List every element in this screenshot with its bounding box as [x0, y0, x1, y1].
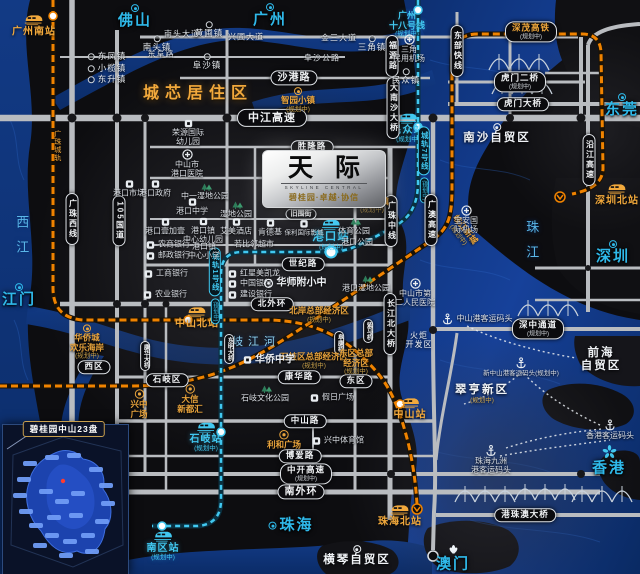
- station-nanqu-label: 南区站: [147, 543, 180, 554]
- road-fusha-hwy-text: 阜沙公路: [304, 55, 340, 64]
- rail-guangzhu-label: 广珠城轨: [53, 130, 61, 162]
- road-nanwaihuan: 南外环: [278, 484, 325, 499]
- poi-yijiayi-label: 港口壹加壹: [145, 228, 185, 237]
- town-fusha: 阜沙镇: [193, 53, 222, 71]
- train-icon: [196, 420, 216, 433]
- city-macau: 澳门: [436, 545, 470, 574]
- poi-xingzhong-plaza-line-1: 广场: [130, 410, 147, 420]
- zone-cuiheng: 翠亨新区(规划中): [455, 384, 509, 404]
- bank-icon: [144, 270, 153, 279]
- furniture-mall-icon: [228, 270, 237, 279]
- station-guangzhounan-label: 广州南站: [12, 26, 56, 37]
- town-dongfeng-text: 东凤镇: [98, 52, 127, 62]
- poi-shiqi-cbd-suffix: (规划中): [302, 362, 326, 369]
- poi-dongqu-cbd-line-1: 经济区: [343, 358, 369, 368]
- project-name: 天际: [266, 156, 382, 181]
- bridge-humen2-suffix: (规划中): [509, 84, 531, 91]
- river-zhujiang-label: 珠江: [524, 220, 539, 270]
- poi-gangkou-middle-text: 港口中学: [176, 208, 208, 217]
- poi-lihe-plaza-label: 利和广场: [267, 441, 301, 451]
- poi-wetland-park: 湿地公园: [220, 199, 252, 220]
- plaza-icon: [185, 384, 195, 394]
- road-dongqu-label: 东区: [346, 376, 365, 386]
- road-fusha-hwy-label: 阜沙公路: [304, 55, 340, 64]
- poi-huaqiao-middle: 华侨中学: [243, 354, 295, 365]
- plaza-icon: [134, 389, 144, 399]
- poi-ruobilin-label: 若比邻超市: [234, 241, 274, 250]
- poi-poly-cinema-label: 保利国际影城: [285, 229, 324, 236]
- station-gangkou-suffix: (规划中): [319, 244, 343, 251]
- poi-second-hospital-text: 中山市第二人民医院: [395, 290, 435, 308]
- poi-sanjiao-airport-text: 三角民用机场: [393, 46, 425, 64]
- logo-divider: [281, 183, 367, 184]
- road-jiuwei: 旧围街: [286, 209, 317, 220]
- poi-gangkou-gov-text: 港口政府: [139, 190, 171, 199]
- project-logo-card: 天际 SKYLINE CENTRAL 碧桂园·卓越·协信: [262, 150, 386, 208]
- anchor-icon: [442, 313, 454, 325]
- bridge-hzmb-label: 港珠澳大桥: [501, 510, 549, 520]
- location-map: 天际 SKYLINE CENTRAL 碧桂园·卓越·协信: [0, 0, 640, 574]
- kindergarten-icon: [184, 119, 193, 128]
- poi-yijiayi: 港口壹加壹: [145, 218, 185, 237]
- school-icon: [264, 278, 274, 288]
- poi-second-hospital-line-1: 二人民医院: [395, 299, 435, 308]
- park-icon: [347, 216, 362, 227]
- poi-beian-cbd-suffix: (规划中): [307, 316, 331, 323]
- road-xingpu-ave-label: 兴圃大道: [228, 34, 264, 43]
- road-zhongkai-expwy-suffix: (规划中): [295, 476, 317, 483]
- city-dongguan: 东莞: [605, 93, 639, 119]
- bridge-hzmb: 港珠澳大桥: [494, 508, 556, 522]
- road-guangzhu-west-label: 广珠西线: [68, 199, 77, 239]
- road-boai: 博爱路: [279, 449, 322, 463]
- city-shenzhen-label: 深圳: [596, 249, 630, 266]
- bridge-dongming: 东明大桥: [224, 334, 234, 364]
- kindergarten-icon: [199, 217, 208, 226]
- poi-xingzhong-stadium-text: 兴中体育馆: [324, 437, 364, 446]
- poi-dongqu-cbd-suffix: (规划中): [344, 368, 368, 375]
- poi-nongshang-bank-label: 农商银行: [158, 241, 190, 250]
- government-icon: [151, 180, 160, 189]
- city-foshan-marker-icon: [131, 4, 139, 12]
- poi-jiuzhou-port-text: 珠海九洲港客运码头: [471, 458, 511, 476]
- city-zhuhai-label: 珠海: [279, 518, 313, 535]
- poi-sports-park-text: 体育公园: [338, 228, 370, 237]
- poi-beian-cbd-text: 北岸总部经济区(规划中): [289, 307, 349, 324]
- bridge-zima-label: 紫马桥: [365, 322, 372, 340]
- poi-zhiyuan-town-suffix: (规划中): [286, 106, 310, 113]
- station-zhongshan-label: 中山站: [394, 409, 427, 420]
- road-g105-label: 105国道: [115, 201, 124, 240]
- poi-jiuzhou-port: 珠海九洲港客运码头: [471, 445, 511, 476]
- poi-rongyuan-kindergarten-line-1: 幼儿园: [176, 138, 200, 147]
- zone-hengqin-ftz-marker-icon: [353, 545, 361, 553]
- poi-aimei-hotel-label: 艾美酒店: [220, 228, 252, 237]
- station-shiqi-suffix: (规划中): [194, 445, 218, 452]
- plaza-icon: [279, 430, 289, 440]
- poi-huashi-school: 华师附小中: [264, 277, 327, 288]
- train-icon: [24, 12, 44, 25]
- town-huangpu: 黄圃镇: [195, 21, 224, 39]
- poi-zhiyuan-town-marker-icon: [294, 87, 302, 95]
- market-icon: [125, 180, 134, 189]
- school-icon: [188, 198, 197, 207]
- poi-gongshang-bank-text: 工商银行: [156, 270, 188, 279]
- city-jiangmen-text: 江门: [2, 292, 36, 309]
- poi-nongye-bank-label: 农业银行: [155, 291, 187, 300]
- town-nantou-marker-icon: [153, 35, 160, 42]
- town-dongsheng: 东升镇: [88, 75, 127, 85]
- city-dongguan-marker-icon: [618, 93, 626, 101]
- poi-jianshe-bank-text: 建设银行: [240, 291, 272, 300]
- road-kanghua-label: 康华路: [285, 372, 314, 382]
- poi-hk-ferry: 香港客运码头: [586, 419, 634, 441]
- town-dongfeng-label: 东凤镇: [98, 52, 127, 62]
- road-dongbu-express-label: 东部快线: [453, 31, 462, 71]
- poi-shiqi-culture-park-label: 石岐文化公园: [241, 395, 289, 404]
- town-xiaolan-text: 小榄镇: [98, 64, 127, 74]
- zone-nansha-ftz-marker-icon: [493, 123, 501, 131]
- hospital-icon: [410, 278, 421, 289]
- poi-gongshang-bank-label: 工商银行: [156, 270, 188, 279]
- bank-icon: [146, 241, 155, 250]
- zone-nansha-ftz-text: 南沙自贸区: [463, 132, 531, 145]
- poi-gangkou-park-text: 港口公园: [341, 239, 373, 248]
- station-nanqu-text: 南区站(规划中): [147, 543, 180, 561]
- inset-title: 碧桂园中山23盘: [23, 421, 105, 437]
- inset-site-dot: [61, 479, 65, 483]
- airport-icon: [404, 34, 415, 45]
- poi-nongshang-bank-text: 农商银行: [158, 241, 190, 250]
- poi-holiday-plaza-text: 假日广场: [322, 394, 354, 403]
- town-minzhong-label: 民众镇: [392, 76, 421, 86]
- city-hongkong-label: 香港: [592, 461, 626, 478]
- poi-gangkou-hospital-line-1: 港口医院: [171, 170, 203, 179]
- city-guangzhou-marker-icon: [266, 3, 274, 11]
- poi-lihe-plaza: 利和广场: [267, 430, 301, 451]
- poi-holiday-plaza: 假日广场: [310, 394, 354, 403]
- city-zhuhai-marker-icon: [268, 522, 276, 530]
- poi-kfc-text: 肯德基: [258, 229, 282, 238]
- town-dongsheng-label: 东升镇: [98, 75, 127, 85]
- road-nanwaihuan-label: 南外环: [285, 486, 318, 497]
- road-beiwaihuan-label: 北外环: [258, 299, 287, 309]
- city-macau-text: 澳门: [436, 557, 470, 574]
- town-dongsheng-text: 东升镇: [98, 75, 127, 85]
- city-shenzhen-text: 深圳: [596, 249, 630, 266]
- road-dongbu-express: 东部快线: [451, 25, 464, 77]
- metro-line7-pill-label: 城轨7号线: [418, 126, 430, 175]
- train-icon: [187, 304, 207, 317]
- road-yanjiang-expwy-label: 沿江高速: [585, 140, 594, 180]
- station-shenzhenbei-label: 深圳北站: [595, 195, 639, 206]
- road-xiqu-label: 西区: [84, 362, 103, 372]
- poi-oct-happy-coast: 华侨城欢乐海岸(规划中): [70, 324, 104, 359]
- bridge-humen: 虎门大桥: [497, 97, 549, 111]
- park-icon: [359, 273, 374, 284]
- poi-oct-happy-coast-suffix: (规划中): [75, 352, 99, 359]
- poi-new-zhongshan-port-text: 新中山港客运码头(规划中): [483, 370, 559, 377]
- station-zhongshan-text: 中山站: [394, 409, 427, 420]
- station-zhongshan: 中山站: [394, 395, 427, 420]
- poi-rongyuan-kindergarten-text: 荣源国际幼儿园: [172, 129, 204, 147]
- zone-nansha-ftz: 南沙自贸区: [463, 123, 531, 145]
- poi-xingzhong-stadium-label: 兴中体育馆: [324, 437, 364, 446]
- town-xiaolan-marker-icon: [88, 65, 95, 72]
- road-guangzhu-west: 广珠西线: [66, 193, 79, 245]
- poi-kfc-label: 肯德基: [258, 229, 282, 238]
- poi-zhongshan-port: 中山港客运码头: [442, 313, 513, 325]
- road-jiuwei-label: 旧围街: [291, 210, 312, 218]
- poi-xingzhong-plaza-text: 兴中广场: [130, 400, 147, 419]
- bank-icon: [146, 252, 155, 261]
- park-icon: [258, 383, 273, 394]
- poi-dongqu-cbd-text: 东区总部经济区(规划中): [339, 349, 373, 375]
- hospital-icon: [182, 149, 193, 160]
- zone-qianhai-ftz: 前海自贸区: [581, 347, 622, 373]
- zone-qianhai-ftz-line-1: 自贸区: [581, 360, 622, 373]
- project-name-en: SKYLINE CENTRAL: [285, 185, 364, 190]
- poi-hk-ferry-label: 香港客运码头: [586, 432, 634, 441]
- river-zhujiang: 珠江: [524, 220, 539, 270]
- poi-gangkou-park: 港口公园: [341, 239, 373, 248]
- airport-icon: [461, 205, 472, 216]
- road-xingpu-ave-text: 兴圃大道: [228, 34, 264, 43]
- zone-cuiheng-label: 翠亨新区: [455, 384, 509, 397]
- road-guangao-expwy: 广澳高速: [425, 194, 438, 246]
- poi-poly-cinema: 保利国际影城: [285, 219, 324, 236]
- poi-zhiyuan-town-text: 智园小镇(规划中): [281, 96, 315, 113]
- poi-xingzhong-plaza: 兴中广场: [130, 389, 147, 419]
- city-zhuhai-text: 珠海: [279, 518, 313, 535]
- zone-torch: 火炬开发区: [406, 332, 433, 350]
- river-xijiang: 西江: [14, 215, 29, 265]
- inset-map-graphic: [3, 425, 128, 574]
- river-zhujiang-text: 珠江: [524, 220, 539, 270]
- city-jiangmen-label: 江门: [2, 292, 36, 309]
- zone-qianhai-ftz-text: 前海自贸区: [581, 347, 622, 373]
- station-minzhong-suffix: (规划中): [396, 136, 420, 143]
- bridge-humen2-label: 虎门二桥: [501, 73, 539, 83]
- poi-second-hospital: 中山市第二人民医院: [395, 278, 435, 308]
- poi-kfc: 肯德基: [258, 219, 282, 238]
- town-nantou-label: 南头镇: [143, 43, 172, 53]
- hotel-icon: [232, 218, 241, 227]
- poi-new-zhongshan-port: 新中山港客运码头(规划中): [483, 357, 559, 377]
- city-jiangmen: 江门: [2, 283, 36, 309]
- poi-baoan-airport-line-1: 际机场: [454, 226, 478, 235]
- bridge-zima: 紫马桥: [363, 319, 373, 343]
- town-sanjiao-label: 三角镇: [358, 43, 387, 53]
- poi-sports-park: 体育公园: [338, 216, 370, 237]
- road-g105: 105国道: [113, 195, 126, 246]
- lotus-flower-icon: [445, 545, 460, 556]
- metro-line7-pill: 城轨7号线(规划中): [418, 126, 430, 203]
- poi-youzheng-bank: 邮政银行: [146, 252, 190, 261]
- poi-gangkou-park-label: 港口公园: [341, 239, 373, 248]
- poi-yijiayi-text: 港口壹加壹: [145, 228, 185, 237]
- road-shagang: 沙港路: [271, 70, 318, 85]
- zone-torch-line-1: 开发区: [406, 341, 433, 350]
- poi-xingzhong-stadium: 兴中体育馆: [312, 437, 364, 446]
- road-jinsan-ave: 金三大道: [321, 35, 357, 44]
- town-huangpu-label: 黄圃镇: [195, 29, 224, 39]
- poi-shiqi-culture-park: 石岐文化公园: [241, 383, 289, 404]
- poi-jianshe-bank-label: 建设银行: [240, 291, 272, 300]
- city-dongguan-label: 东莞: [605, 102, 639, 119]
- zone-hengqin-ftz-label: 横琴自贸区: [323, 554, 391, 567]
- poi-sports-park-label: 体育公园: [338, 228, 370, 237]
- poi-gangkou-primary: 港口镇中心小学: [188, 243, 220, 261]
- town-fusha-label: 阜沙镇: [193, 61, 222, 71]
- poi-gangkou-primary-line-1: 中心小学: [188, 252, 220, 261]
- anchor-icon: [485, 445, 497, 457]
- metro-line1-pill-suffix: (规划中): [210, 299, 219, 325]
- park-icon: [198, 181, 213, 192]
- town-minzhong-text: 民众镇: [392, 76, 421, 86]
- supermarket-icon: [161, 218, 170, 227]
- city-hongkong-text: 香港: [592, 461, 626, 478]
- train-icon: [398, 111, 418, 124]
- town-nantou: 南头镇: [143, 35, 172, 53]
- poi-daxin-mall-text: 大信新都汇: [177, 395, 203, 414]
- road-guangao-expwy-label: 广澳高速: [427, 200, 436, 240]
- poi-gangkou-gov-label: 港口政府: [139, 190, 171, 199]
- bridge-kanghua-label: 康华大桥: [142, 344, 149, 368]
- bank-icon: [228, 280, 237, 289]
- town-huangpu-text: 黄圃镇: [195, 29, 224, 39]
- bank-icon: [228, 291, 237, 300]
- stadium-icon: [312, 437, 321, 446]
- road-zhongshanlu-label: 中山路: [291, 416, 320, 426]
- station-nanqu-suffix: (规划中): [151, 554, 175, 561]
- zone-torch-text: 火炬开发区: [406, 332, 433, 350]
- town-dongsheng-marker-icon: [88, 76, 95, 83]
- kfc-icon: [266, 219, 275, 228]
- poi-huaqiao-middle-label: 华侨中学: [255, 354, 295, 365]
- station-shiqi: 石岐站(规划中): [190, 420, 223, 452]
- poi-aimei-hotel: 艾美酒店: [220, 218, 252, 237]
- city-guangzhou-label: 广州: [253, 12, 287, 29]
- town-dongfeng-marker-icon: [88, 53, 95, 60]
- poi-gangkou-primary-text: 港口镇中心小学: [188, 243, 220, 261]
- poi-zhongshan-port-text: 中山港客运码头: [457, 315, 513, 324]
- river-qijiang: 岐江河: [232, 336, 280, 348]
- station-zhuhaibei-label: 珠海北站: [378, 516, 422, 527]
- bridge-dongming-label: 东明大桥: [226, 337, 233, 361]
- anchor-icon: [515, 357, 527, 369]
- inset-map-panel: [2, 424, 129, 574]
- bauhinia-flower-icon: [601, 445, 616, 460]
- rail-guangzhu-label-text: 广珠城轨: [53, 130, 61, 162]
- road-zhongkai-expwy: 中开高速(规划中): [280, 463, 332, 484]
- poi-daxin-mall-line-1: 新都汇: [177, 405, 203, 415]
- city-foshan-label: 佛山: [118, 13, 152, 30]
- road-zhongshanlu: 中山路: [284, 414, 327, 428]
- bridge-shenzhong-suffix: (规划中): [527, 331, 549, 338]
- road-fusha-hwy: 阜沙公路: [304, 55, 340, 64]
- zone-cuiheng-suffix: (规划中): [470, 397, 494, 404]
- town-sanjiao-marker-icon: [368, 35, 375, 42]
- town-xiaolan: 小榄镇: [88, 64, 127, 74]
- road-xingpu-ave: 兴圃大道: [228, 34, 264, 43]
- project-brand: 碧桂园·卓越·协信: [289, 192, 359, 203]
- poi-daxin-mall: 大信新都汇: [177, 384, 203, 414]
- poi-gangkou-hospital: 中山市港口医院: [171, 149, 203, 179]
- poi-nongye-bank-text: 农业银行: [155, 291, 187, 300]
- plaza-icon: [310, 394, 319, 403]
- bank-icon: [143, 291, 152, 300]
- poi-ruobilin: 若比邻超市: [234, 241, 274, 250]
- poi-baoan-airport: 宝安国际机场: [454, 205, 478, 235]
- poi-youzheng-bank-label: 邮政银行: [158, 252, 190, 261]
- road-zhongkai-expwy-label: 中开高速: [287, 465, 325, 475]
- poi-gongshang-bank: 工商银行: [144, 270, 188, 279]
- poi-shiqi-culture-park-text: 石岐文化公园: [241, 395, 289, 404]
- bridge-humen-label: 虎门大桥: [504, 99, 542, 109]
- poi-gangkou-wetland-label: 港口湿地公园: [342, 285, 390, 294]
- city-macau-label: 澳门: [436, 557, 470, 574]
- bridge-danansha-label: 大南沙大桥: [389, 83, 398, 133]
- road-jinsan-ave-label: 金三大道: [321, 35, 357, 44]
- train-icon: [153, 529, 173, 542]
- poi-beian-cbd-label: 北岸总部经济区: [289, 307, 349, 317]
- poi-jiuzhou-port-line-1: 港客运码头: [471, 467, 511, 476]
- zone-core-living-label: 城芯居住区: [143, 85, 253, 103]
- poi-gangkou-middle-label: 港口中学: [176, 208, 208, 217]
- poi-zhiyuan-town: 智园小镇(规划中): [281, 87, 315, 113]
- poi-zhiyuan-town-label: 智园小镇: [281, 96, 315, 106]
- poi-jianshe-bank: 建设银行: [228, 291, 272, 300]
- town-xiaolan-label: 小榄镇: [98, 64, 127, 74]
- poi-sanjiao-airport-line-1: 民用机场: [393, 55, 425, 64]
- city-jiangmen-marker-icon: [15, 283, 23, 291]
- city-foshan-text: 佛山: [118, 13, 152, 30]
- station-zhuhaibei-text: 珠海北站: [378, 516, 422, 527]
- city-shenzhen: 深圳: [596, 240, 630, 266]
- town-fusha-text: 阜沙镇: [193, 61, 222, 71]
- station-guangzhounan: 广州南站: [12, 12, 56, 37]
- metro-line18-label-line-1: 十八号线: [389, 20, 425, 30]
- road-shiji: 世纪路: [282, 257, 325, 271]
- poi-zhongshan-port-label: 中山港客运码头: [457, 315, 513, 324]
- poi-oct-happy-coast-text: 华侨城欢乐海岸(规划中): [70, 333, 104, 359]
- zone-hengqin-ftz: 横琴自贸区: [323, 545, 391, 567]
- zone-hengqin-ftz-text: 横琴自贸区: [323, 554, 391, 567]
- station-shiqi-label: 石岐站: [190, 434, 223, 445]
- bridge-shenzhong-label: 深中通道: [519, 320, 557, 330]
- poi-rongyuan-kindergarten: 荣源国际幼儿园: [172, 119, 204, 147]
- town-dongfeng: 东凤镇: [88, 52, 127, 62]
- poi-gangkou-wetland-text: 港口湿地公园: [342, 285, 390, 294]
- rail-shenmao-label: 深茂高铁(规划中): [505, 21, 557, 42]
- poi-lihe-plaza-text: 利和广场: [267, 441, 301, 451]
- anchor-icon: [604, 419, 616, 431]
- poi-ruobilin-text: 若比邻超市: [234, 241, 274, 250]
- zone-core-living: 城芯居住区: [143, 85, 253, 103]
- poi-dongqu-cbd: 东区总部经济区(规划中): [339, 349, 373, 375]
- train-icon: [390, 502, 410, 515]
- road-shiji-label: 世纪路: [289, 259, 318, 269]
- poi-huaqiao-middle-text: 华侨中学: [255, 354, 295, 365]
- poi-hk-ferry-text: 香港客运码头: [586, 432, 634, 441]
- river-xijiang-label: 西江: [14, 215, 29, 265]
- poi-gangkou-gov: 港口政府: [139, 180, 171, 199]
- bridge-changjiangbei-label: 长江北大桥: [386, 299, 395, 349]
- cinema-icon: [300, 219, 309, 228]
- zone-nansha-ftz-label: 南沙自贸区: [463, 132, 531, 145]
- city-dongguan-text: 东莞: [605, 102, 639, 119]
